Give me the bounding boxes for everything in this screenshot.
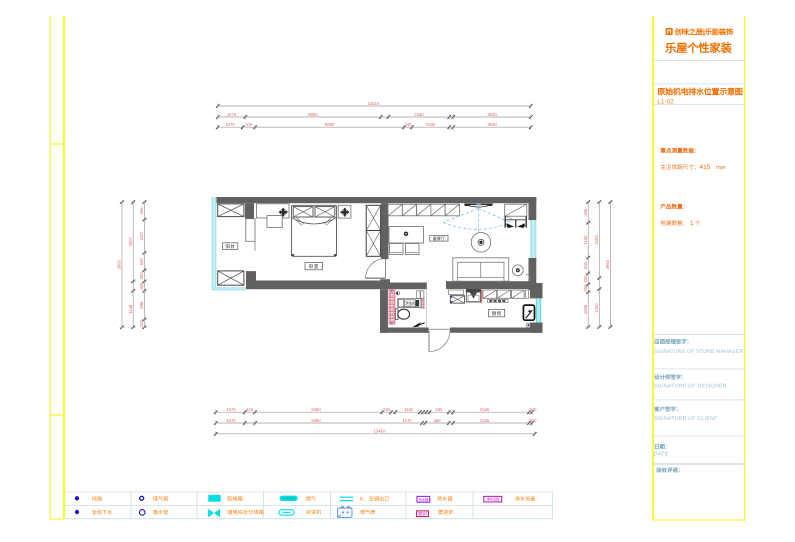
svg-text:L1-02: L1-02 bbox=[657, 99, 674, 106]
svg-text:SIGNATURE OF CLIENT: SIGNATURE OF CLIENT bbox=[654, 416, 718, 422]
svg-text:客餐厅: 客餐厅 bbox=[433, 236, 446, 241]
svg-text:250: 250 bbox=[139, 319, 144, 327]
svg-text:3530: 3530 bbox=[487, 112, 497, 117]
svg-text:2345: 2345 bbox=[480, 418, 490, 423]
svg-text:卫生间: 卫生间 bbox=[404, 301, 415, 306]
svg-text:重点测量数据：: 重点测量数据： bbox=[660, 148, 699, 155]
svg-text:日期：: 日期： bbox=[654, 443, 670, 450]
svg-text:550: 550 bbox=[139, 257, 144, 265]
svg-text:主卫坑距尺寸：415 mm: 主卫坑距尺寸：415 mm bbox=[660, 164, 725, 171]
svg-text:地漏: 地漏 bbox=[92, 495, 102, 502]
svg-text:510: 510 bbox=[530, 407, 538, 412]
svg-text:1075: 1075 bbox=[226, 418, 236, 423]
svg-text:898: 898 bbox=[139, 301, 144, 309]
svg-text:1148: 1148 bbox=[128, 304, 133, 314]
svg-text:13410: 13410 bbox=[368, 101, 380, 106]
svg-text:1096: 1096 bbox=[583, 304, 588, 314]
svg-text:落水管: 落水管 bbox=[153, 509, 169, 516]
svg-text:6080: 6080 bbox=[325, 122, 335, 127]
svg-text:6080: 6080 bbox=[308, 112, 318, 117]
svg-text:240: 240 bbox=[405, 122, 413, 127]
svg-text:SIGNATURE OF STORE MANAGER: SIGNATURE OF STORE MANAGER bbox=[654, 349, 743, 355]
svg-text:500: 500 bbox=[583, 261, 588, 269]
svg-text:厨房: 厨房 bbox=[492, 310, 502, 317]
svg-text:1160: 1160 bbox=[404, 407, 414, 412]
svg-text:燃气: 燃气 bbox=[306, 495, 316, 502]
svg-text:350: 350 bbox=[139, 272, 144, 280]
svg-text:2345: 2345 bbox=[480, 407, 490, 412]
svg-text:460: 460 bbox=[434, 418, 442, 423]
svg-text:燃气表: 燃气表 bbox=[360, 509, 376, 516]
svg-text:13410: 13410 bbox=[374, 429, 386, 434]
svg-text:卧室: 卧室 bbox=[309, 263, 319, 270]
svg-text:店面经理签字：: 店面经理签字： bbox=[653, 338, 692, 345]
svg-text:300: 300 bbox=[139, 282, 144, 290]
svg-text:创味之居|乐能装饰: 创味之居|乐能装饰 bbox=[674, 28, 734, 37]
svg-text:地漏数量： 1 个: 地漏数量： 1 个 bbox=[660, 220, 701, 227]
svg-text:510: 510 bbox=[530, 418, 538, 423]
svg-text:煤气管: 煤气管 bbox=[153, 495, 169, 502]
svg-text:6080: 6080 bbox=[311, 407, 321, 412]
svg-text:3950: 3950 bbox=[117, 259, 122, 269]
svg-text:2507: 2507 bbox=[128, 236, 133, 246]
svg-text:热水器: 热水器 bbox=[437, 495, 453, 502]
svg-text:2040: 2040 bbox=[426, 122, 436, 127]
svg-text:验收评语：: 验收评语： bbox=[656, 467, 683, 474]
svg-text:乐屋个性家装: 乐屋个性家装 bbox=[665, 42, 732, 55]
svg-text:原始机电排水位置示意图: 原始机电排水位置示意图 bbox=[657, 87, 742, 97]
svg-text:热水器: 热水器 bbox=[419, 497, 429, 502]
svg-text:净水设备: 净水设备 bbox=[515, 495, 537, 502]
svg-text:2340: 2340 bbox=[414, 112, 424, 117]
svg-text:630: 630 bbox=[436, 407, 444, 412]
svg-text:1075: 1075 bbox=[226, 407, 236, 412]
svg-text:1075: 1075 bbox=[225, 122, 235, 127]
svg-text:1100: 1100 bbox=[583, 235, 588, 245]
svg-text:K：空调出口: K：空调出口 bbox=[360, 495, 389, 502]
svg-text:240: 240 bbox=[383, 407, 391, 412]
svg-text:产品数量：: 产品数量： bbox=[660, 203, 688, 210]
svg-text:3954: 3954 bbox=[605, 259, 610, 269]
svg-text:1200: 1200 bbox=[594, 303, 599, 313]
svg-text:强电综合分线箱: 强电综合分线箱 bbox=[227, 509, 263, 516]
svg-text:客户签字：: 客户签字： bbox=[653, 406, 681, 413]
svg-text:净水设备: 净水设备 bbox=[487, 497, 500, 502]
svg-text:1270: 1270 bbox=[402, 418, 412, 423]
svg-text:壁挂炉: 壁挂炉 bbox=[438, 509, 454, 516]
svg-text:1047: 1047 bbox=[139, 231, 144, 241]
svg-text:350: 350 bbox=[583, 275, 588, 283]
svg-text:656: 656 bbox=[583, 208, 588, 216]
svg-text:对讲机: 对讲机 bbox=[306, 509, 322, 516]
svg-text:1075: 1075 bbox=[227, 112, 237, 117]
svg-text:全房下水: 全房下水 bbox=[92, 509, 114, 516]
svg-text:3530: 3530 bbox=[487, 122, 497, 127]
svg-text:2406: 2406 bbox=[594, 235, 599, 245]
svg-text:设计师签字：: 设计师签字： bbox=[654, 374, 686, 381]
svg-text:配电箱: 配电箱 bbox=[227, 495, 243, 502]
svg-text:壁挂炉: 壁挂炉 bbox=[418, 511, 428, 516]
svg-text:556: 556 bbox=[139, 207, 144, 215]
svg-text:415: 415 bbox=[246, 407, 254, 412]
svg-text:SIGNATURE OF DESIGNER: SIGNATURE OF DESIGNER bbox=[654, 384, 727, 390]
svg-text:250: 250 bbox=[583, 284, 588, 292]
svg-text:415: 415 bbox=[246, 122, 254, 127]
svg-text:阳台: 阳台 bbox=[225, 244, 235, 249]
svg-text:6080: 6080 bbox=[311, 418, 321, 423]
svg-text:DATE: DATE bbox=[654, 451, 669, 457]
